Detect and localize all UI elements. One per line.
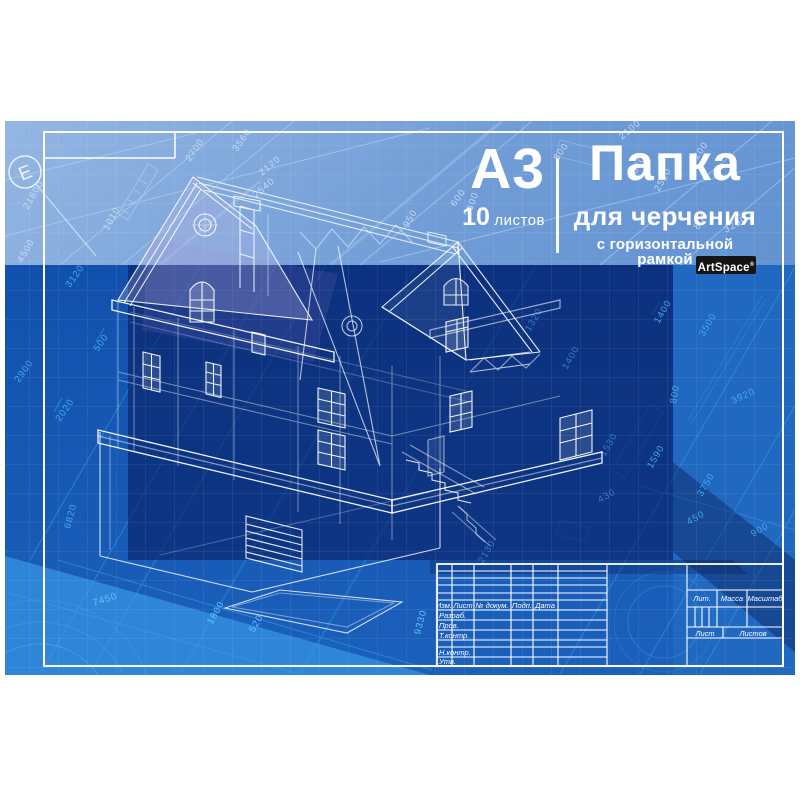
brand-zone: А3 10 листов Папка для черчения с горизо… xyxy=(5,121,795,675)
format-label: А3 xyxy=(445,141,545,198)
sheet-count-number: 10 xyxy=(462,203,490,231)
brand-name: ArtSpace xyxy=(698,262,750,274)
vertical-divider xyxy=(556,158,559,253)
product-subtitle: для черчения xyxy=(567,203,763,229)
folder-cover: 2700356021202540210080012006003600950163… xyxy=(5,121,795,675)
sheet-count-word: листов xyxy=(494,212,545,229)
product-title: Папка xyxy=(567,138,763,188)
sheet-count-label: 10 листов xyxy=(340,205,545,230)
brand-badge: ArtSpace® xyxy=(696,256,756,274)
product-cover-image: 2700356021202540210080012006003600950163… xyxy=(0,0,800,800)
registered-mark: ® xyxy=(750,262,755,268)
